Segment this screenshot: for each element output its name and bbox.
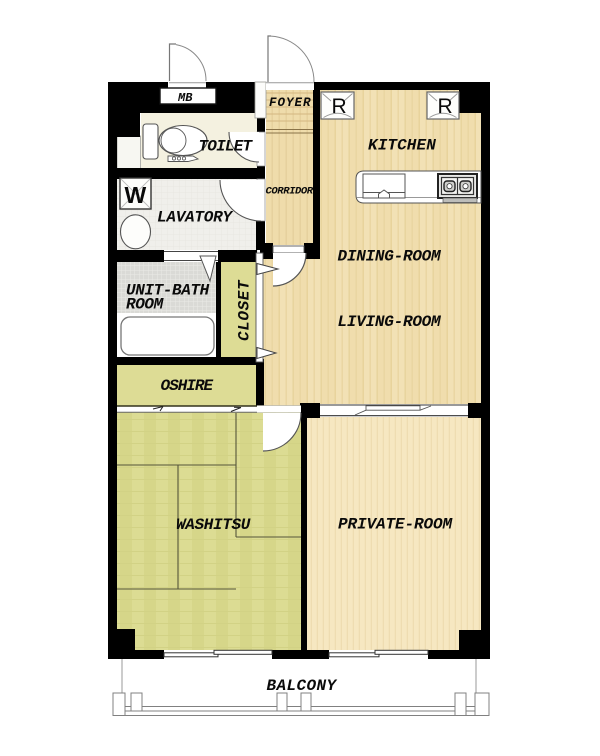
svg-text:TOILET: TOILET [199, 138, 254, 156]
svg-text:FOYER: FOYER [269, 96, 312, 110]
svg-text:R: R [438, 95, 453, 118]
svg-text:MB: MB [177, 91, 193, 105]
svg-text:DINING-ROOM: DINING-ROOM [338, 248, 443, 266]
svg-text:CLOSET: CLOSET [236, 279, 254, 341]
svg-text:OSHIRE: OSHIRE [161, 377, 214, 395]
svg-text:WASHITSU: WASHITSU [176, 516, 251, 534]
svg-text:ROOM: ROOM [126, 296, 165, 314]
svg-text:W: W [125, 182, 147, 208]
svg-text:R: R [332, 95, 347, 118]
svg-text:CORRIDOR: CORRIDOR [266, 186, 314, 198]
svg-text:KITCHEN: KITCHEN [368, 137, 436, 155]
svg-text:PRIVATE-ROOM: PRIVATE-ROOM [338, 516, 454, 534]
svg-text:BALCONY: BALCONY [267, 677, 338, 695]
svg-text:LAVATORY: LAVATORY [157, 209, 233, 227]
svg-text:LIVING-ROOM: LIVING-ROOM [338, 313, 443, 331]
